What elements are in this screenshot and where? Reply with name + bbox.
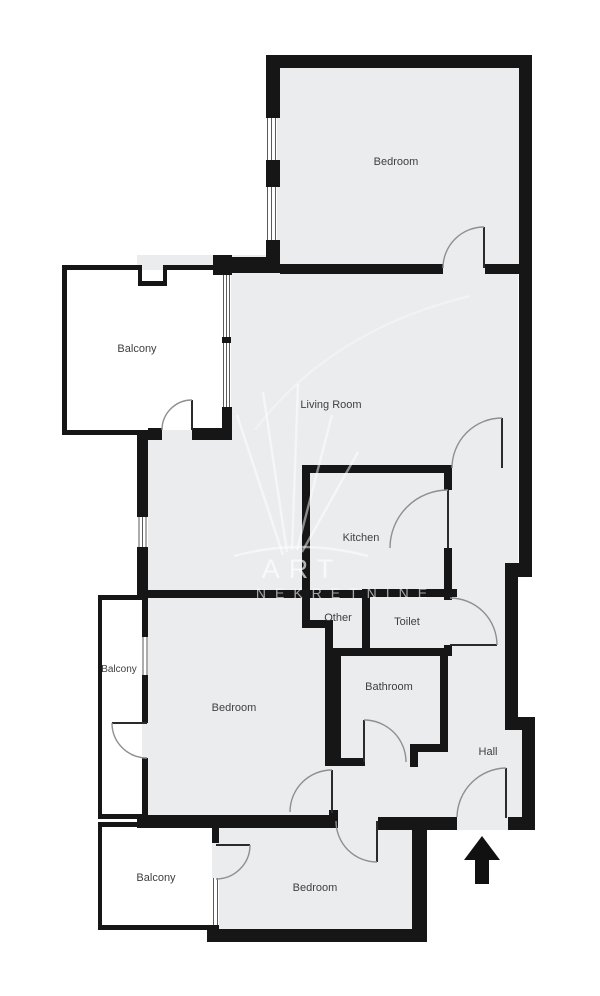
- entrance-arrow-icon: [464, 836, 500, 884]
- label-balcony-top: Balcony: [117, 343, 157, 355]
- label-bedroom-bottom: Bedroom: [293, 882, 338, 894]
- floorplan-drawing: Bedroom Balcony Living Room Kitchen Othe…: [0, 0, 600, 996]
- hall-lower-floor: [378, 717, 535, 830]
- label-bedroom-mid: Bedroom: [212, 702, 257, 714]
- bedroom-bottom-floor: [207, 815, 427, 942]
- floorplan-page: Bedroom Balcony Living Room Kitchen Othe…: [0, 0, 600, 996]
- watermark-title: ART: [262, 554, 343, 584]
- window-bedroom-top-2: [266, 187, 277, 240]
- label-living-room: Living Room: [300, 399, 361, 411]
- window-balcony-bottom: [212, 878, 219, 925]
- window-balcony-mid: [142, 637, 148, 675]
- label-bathroom: Bathroom: [365, 681, 413, 693]
- label-other: Other: [324, 612, 352, 624]
- label-balcony-mid: Balcony: [101, 664, 137, 675]
- window-balcony-top-1: [222, 275, 231, 337]
- watermark-subtitle: NEKRETNINE: [256, 585, 436, 601]
- label-toilet: Toilet: [394, 616, 420, 628]
- label-bedroom-top: Bedroom: [374, 156, 419, 168]
- label-hall: Hall: [479, 746, 498, 758]
- window-balcony-top-2: [222, 343, 231, 407]
- label-balcony-bottom: Balcony: [136, 872, 176, 884]
- balcony-mid-floor: [102, 600, 142, 814]
- window-bedroom-top-1: [266, 118, 277, 160]
- room-floors: [137, 55, 535, 942]
- window-left-wall: [137, 517, 148, 547]
- label-kitchen: Kitchen: [343, 532, 380, 544]
